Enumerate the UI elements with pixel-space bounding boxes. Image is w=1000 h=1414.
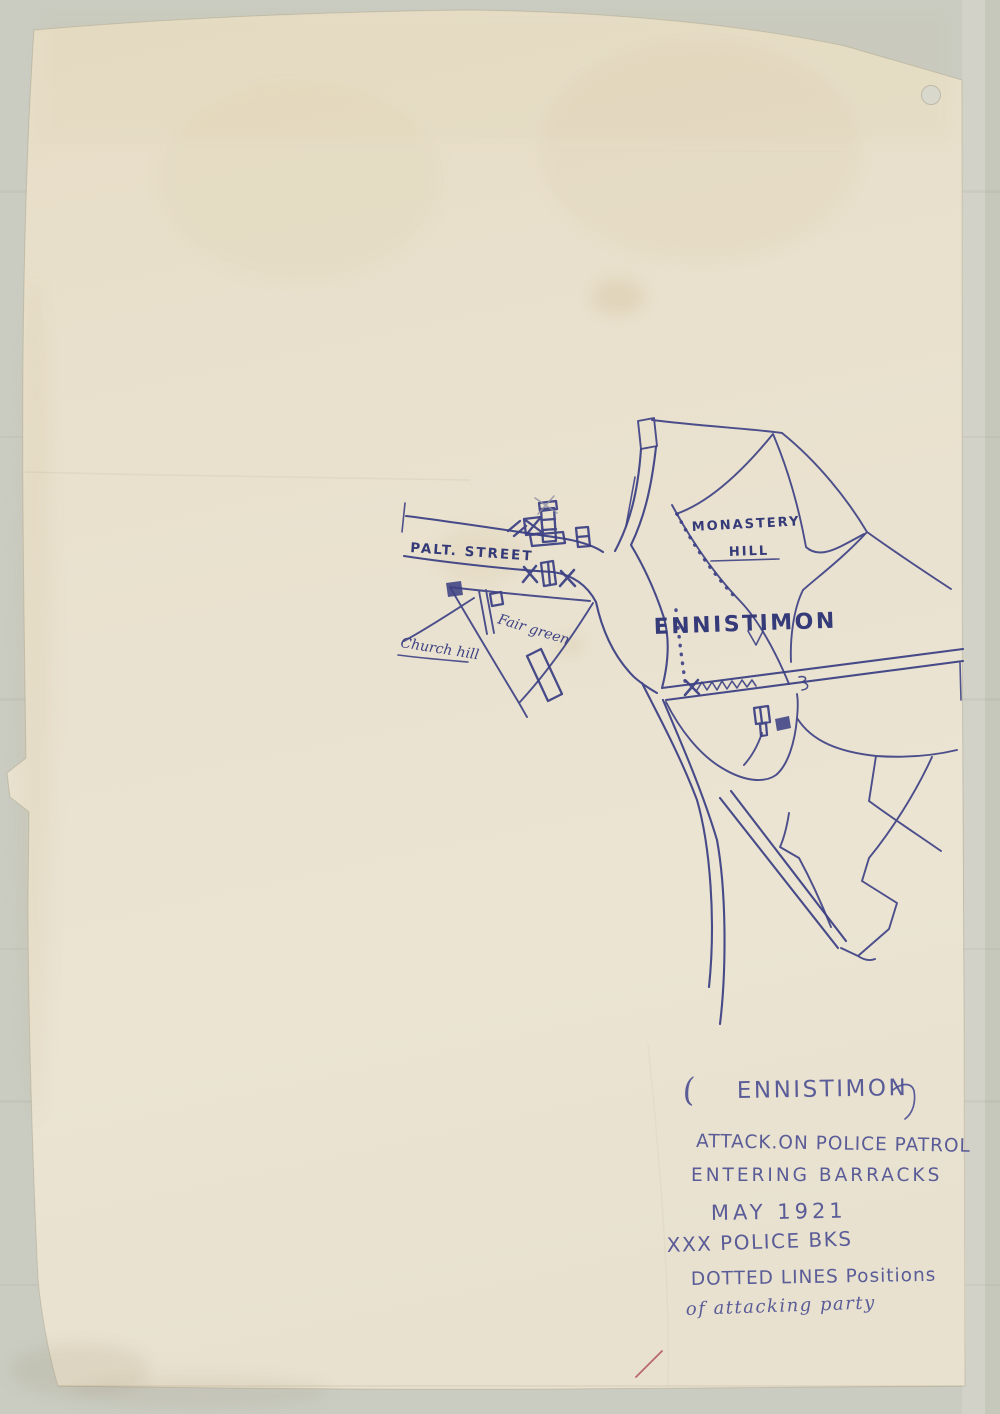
scanned-map-document: PALT. STREET MONASTERY HILL ENNISTIMON C… xyxy=(0,0,1000,1414)
label-monastery-hill-line2: HILL xyxy=(729,544,770,560)
caption-line-dotted-lines: DOTTED LINES Positions xyxy=(691,1265,937,1290)
background-right-edge-band xyxy=(985,0,1000,1414)
map-drawing-canvas: PALT. STREET MONASTERY HILL ENNISTIMON C… xyxy=(0,0,1000,1414)
caption-line-date: MAY 1921 xyxy=(711,1199,847,1225)
punch-hole xyxy=(922,86,941,105)
caption-title: ENNISTIMON xyxy=(737,1075,909,1104)
caption-line-entering: ENTERING BARRACKS xyxy=(691,1165,942,1186)
